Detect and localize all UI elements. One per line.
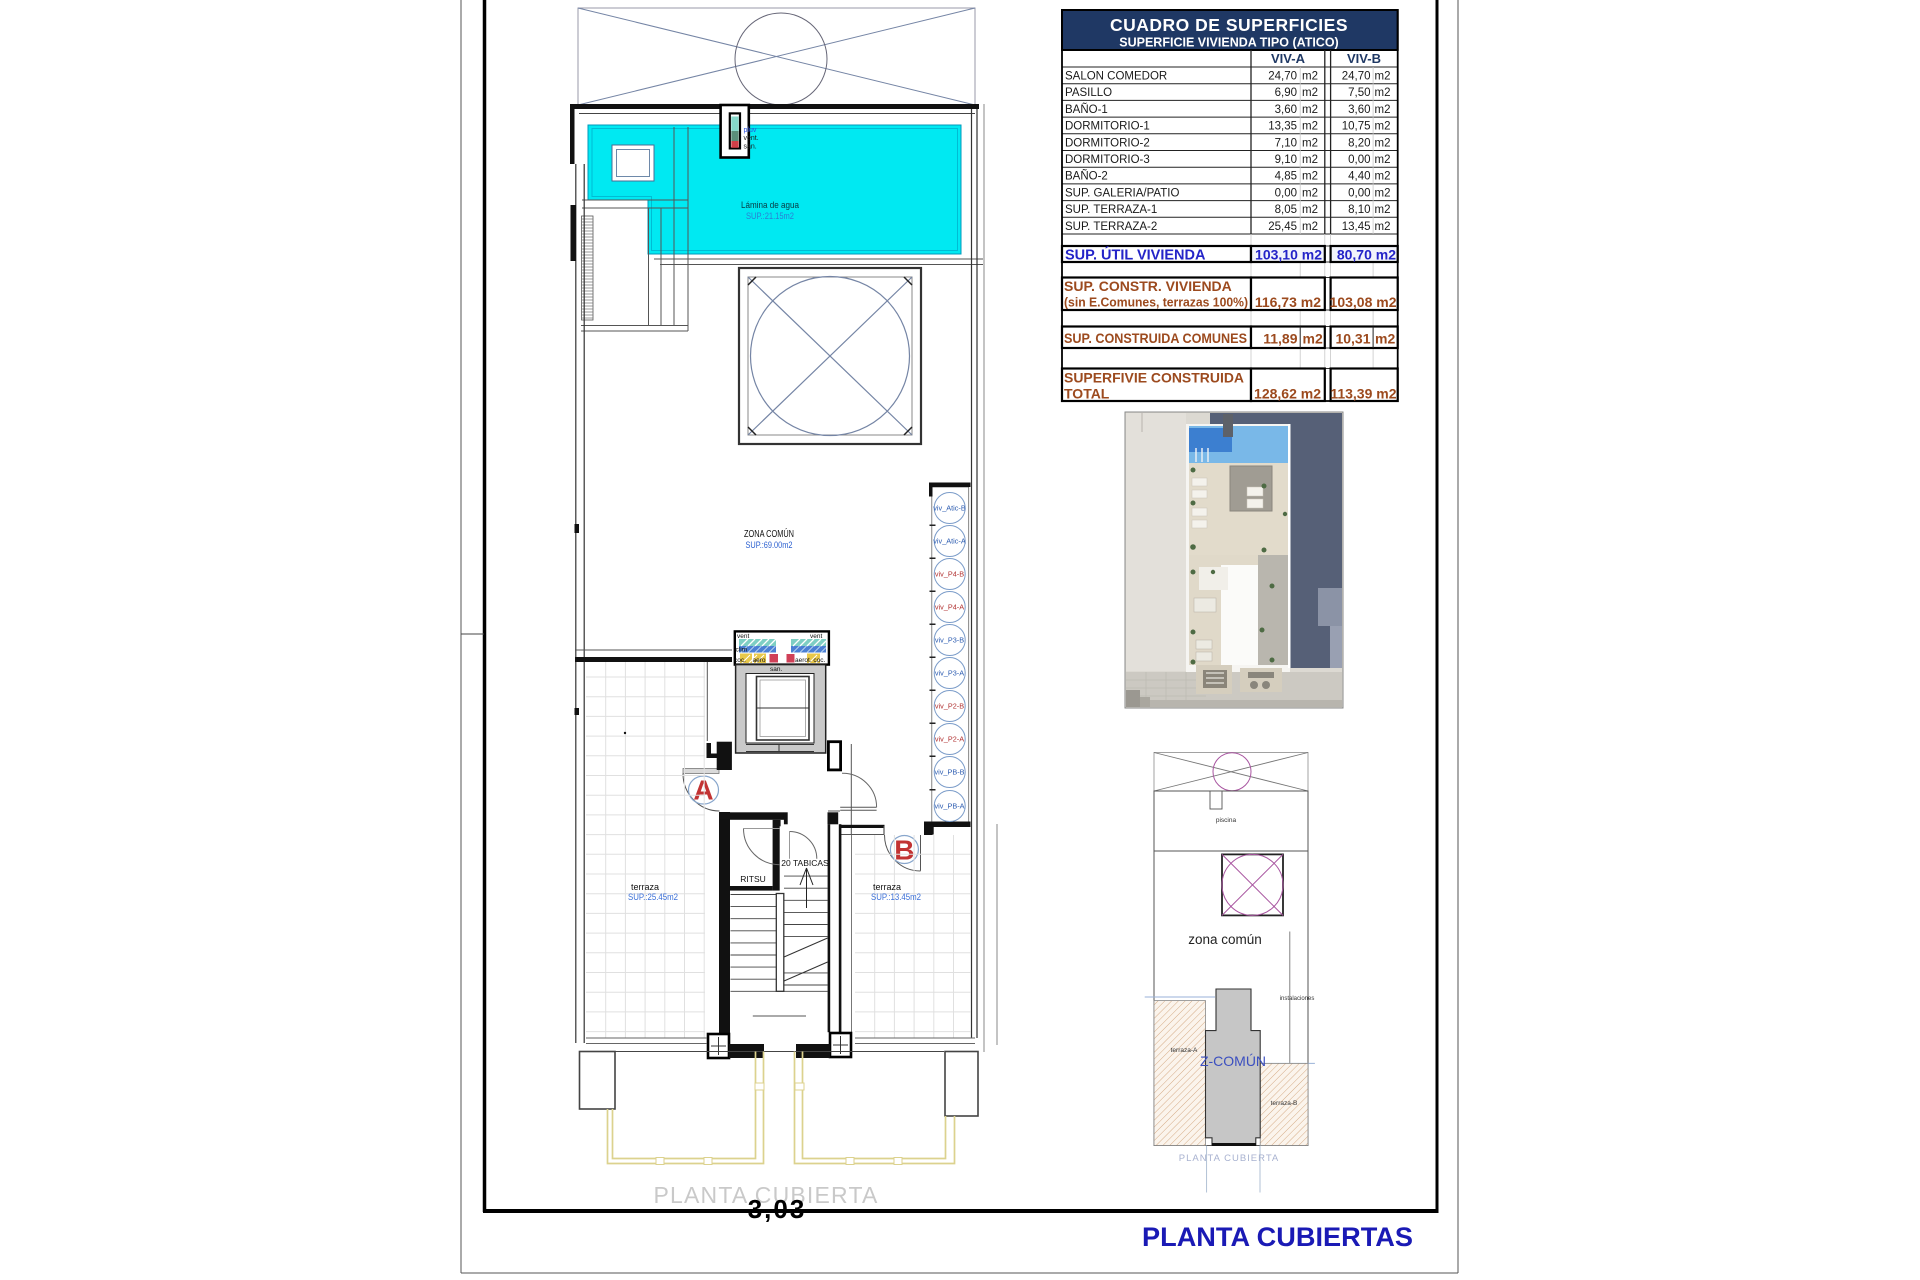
svg-text:viv_PB-B: viv_PB-B — [934, 768, 964, 777]
svg-text:vent: vent — [810, 633, 822, 640]
svg-text:piscina: piscina — [1216, 817, 1237, 824]
svg-text:m2: m2 — [1302, 154, 1318, 166]
svg-text:BAÑO-2: BAÑO-2 — [1065, 170, 1108, 183]
svg-text:103,10 m2: 103,10 m2 — [1255, 247, 1322, 263]
svg-text:terraza: terraza — [873, 882, 901, 892]
svg-text:SUP.:25.45m2: SUP.:25.45m2 — [628, 892, 678, 902]
svg-text:SUP.:21.15m2: SUP.:21.15m2 — [746, 211, 794, 221]
svg-text:m2: m2 — [1375, 187, 1391, 199]
svg-text:3,60: 3,60 — [1275, 104, 1297, 116]
svg-text:m2: m2 — [1375, 204, 1391, 216]
svg-text:m2: m2 — [1302, 204, 1318, 216]
svg-text:24,70: 24,70 — [1268, 71, 1297, 83]
svg-text:m2: m2 — [1302, 187, 1318, 199]
svg-text:VIV-A: VIV-A — [1271, 51, 1306, 66]
svg-text:viv_P2-B: viv_P2-B — [935, 702, 964, 711]
svg-text:SUP. TERRAZA-2: SUP. TERRAZA-2 — [1065, 221, 1157, 233]
svg-text:RITSU: RITSU — [740, 874, 766, 884]
svg-text:m2: m2 — [1375, 137, 1391, 149]
svg-text:PLANTA CUBIERTA: PLANTA CUBIERTA — [1179, 1153, 1280, 1164]
svg-text:(sin E.Comunes, terrazas 100%): (sin E.Comunes, terrazas 100%) — [1064, 295, 1248, 310]
svg-text:m2: m2 — [1375, 331, 1395, 347]
svg-text:13,45: 13,45 — [1342, 221, 1371, 233]
svg-text:viv_Atic-B: viv_Atic-B — [933, 504, 966, 513]
svg-text:SUPERFICIE VIVIENDA TIPO (ATI: SUPERFICIE VIVIENDA TIPO (ATICO) — [1119, 36, 1338, 50]
svg-text:san.: san. — [770, 666, 782, 673]
svg-text:m2: m2 — [1302, 71, 1318, 83]
svg-text:Lámina de agua: Lámina de agua — [741, 200, 800, 211]
svg-text:CUADRO DE SUPERFICIES: CUADRO DE SUPERFICIES — [1110, 15, 1348, 35]
svg-text:103,08 m2: 103,08 m2 — [1330, 294, 1397, 310]
svg-text:24,70: 24,70 — [1342, 71, 1371, 83]
svg-text:viv_P4-B: viv_P4-B — [935, 570, 964, 579]
svg-text:DORMITORIO-2: DORMITORIO-2 — [1065, 137, 1150, 149]
svg-text:25,45: 25,45 — [1268, 221, 1297, 233]
svg-text:m2: m2 — [1303, 331, 1323, 347]
svg-text:clim: clim — [736, 647, 748, 654]
svg-text:m2: m2 — [1375, 87, 1391, 99]
svg-text:terraza-B: terraza-B — [1271, 1100, 1298, 1107]
svg-text:8,10: 8,10 — [1348, 204, 1370, 216]
svg-text:m2: m2 — [1375, 171, 1391, 183]
svg-text:6,90: 6,90 — [1275, 87, 1297, 99]
svg-text:8,20: 8,20 — [1348, 137, 1370, 149]
svg-text:aero: aero — [753, 657, 766, 664]
svg-text:instalaciones: instalaciones — [1280, 996, 1315, 1002]
svg-text:128,62 m2: 128,62 m2 — [1254, 386, 1321, 402]
svg-text:aerot. coc.: aerot. coc. — [795, 657, 826, 664]
svg-text:m2: m2 — [1375, 121, 1391, 133]
svg-text:0,00: 0,00 — [1348, 154, 1370, 166]
svg-text:m2: m2 — [1375, 154, 1391, 166]
svg-text:11,89: 11,89 — [1263, 331, 1297, 347]
svg-text:13,35: 13,35 — [1268, 121, 1297, 133]
svg-text:PASILLO: PASILLO — [1065, 87, 1112, 99]
svg-text:SUP.:69.00m2: SUP.:69.00m2 — [746, 540, 793, 550]
svg-text:vent: vent — [737, 633, 749, 640]
svg-text:A: A — [693, 775, 713, 806]
svg-text:10,31: 10,31 — [1335, 331, 1370, 347]
svg-text:m2: m2 — [1375, 104, 1391, 116]
svg-text:terraza-A: terraza-A — [1171, 1047, 1198, 1054]
svg-text:viv_P3-B: viv_P3-B — [935, 636, 964, 645]
svg-text:TOTAL: TOTAL — [1064, 386, 1110, 402]
svg-text:DORMITORIO-1: DORMITORIO-1 — [1065, 121, 1150, 133]
svg-text:0,00: 0,00 — [1275, 187, 1297, 199]
svg-text:m2: m2 — [1302, 104, 1318, 116]
svg-text:viv_PB-A: viv_PB-A — [934, 802, 964, 811]
svg-text:san.: san. — [744, 144, 757, 151]
svg-text:4,40: 4,40 — [1348, 171, 1370, 183]
svg-text:m2: m2 — [1302, 221, 1318, 233]
svg-text:m2: m2 — [1375, 71, 1391, 83]
svg-text:SUP. TERRAZA-1: SUP. TERRAZA-1 — [1065, 204, 1157, 216]
svg-text:113,39 m2: 113,39 m2 — [1330, 386, 1396, 402]
svg-text:SALON COMEDOR: SALON COMEDOR — [1065, 71, 1167, 83]
svg-text:8,05: 8,05 — [1275, 204, 1297, 216]
svg-text:SUP. GALERIA/PATIO: SUP. GALERIA/PATIO — [1065, 187, 1179, 199]
svg-text:3,60: 3,60 — [1348, 104, 1370, 116]
svg-text:20 TABICAS: 20 TABICAS — [781, 858, 829, 868]
svg-text:0,00: 0,00 — [1348, 187, 1370, 199]
svg-text:m2: m2 — [1302, 171, 1318, 183]
svg-text:m2: m2 — [1375, 221, 1391, 233]
svg-text:terraza: terraza — [631, 882, 659, 892]
svg-text:m2: m2 — [1302, 121, 1318, 133]
svg-text:10,75: 10,75 — [1342, 121, 1371, 133]
svg-text:pluv: pluv — [744, 127, 757, 134]
svg-text:vent.: vent. — [744, 135, 759, 142]
svg-text:7,10: 7,10 — [1275, 137, 1297, 149]
svg-text:viv_P3-A: viv_P3-A — [935, 669, 964, 678]
svg-text:viv_Atic-A: viv_Atic-A — [933, 537, 966, 546]
svg-text:coc.: coc. — [734, 657, 746, 664]
svg-text:116,73 m2: 116,73 m2 — [1255, 294, 1321, 310]
svg-text:Z-COMÚN: Z-COMÚN — [1200, 1053, 1266, 1069]
svg-text:80,70 m2: 80,70 m2 — [1337, 247, 1396, 263]
svg-text:viv_P2-A: viv_P2-A — [935, 735, 964, 744]
svg-text:SUPERFIVIE CONSTRUIDA: SUPERFIVIE CONSTRUIDA — [1064, 370, 1244, 386]
svg-text:B: B — [894, 835, 914, 866]
svg-text:SUP.:13.45m2: SUP.:13.45m2 — [871, 892, 921, 902]
svg-text:m2: m2 — [1302, 137, 1318, 149]
svg-text:m2: m2 — [1302, 87, 1318, 99]
svg-text:SUP. CONSTR. VIVIENDA: SUP. CONSTR. VIVIENDA — [1064, 278, 1232, 294]
svg-text:SUP. CONSTRUIDA COMUNES: SUP. CONSTRUIDA COMUNES — [1064, 330, 1247, 346]
svg-text:BAÑO-1: BAÑO-1 — [1065, 103, 1108, 116]
svg-text:PLANTA CUBIERTAS: PLANTA CUBIERTAS — [1142, 1222, 1413, 1252]
svg-text:DORMITORIO-3: DORMITORIO-3 — [1065, 154, 1150, 166]
svg-text:3,03: 3,03 — [748, 1194, 807, 1224]
svg-text:viv_P4-A: viv_P4-A — [935, 603, 964, 612]
svg-text:4,85: 4,85 — [1275, 171, 1297, 183]
svg-text:9,10: 9,10 — [1275, 154, 1297, 166]
svg-text:SUP. ÚTIL VIVIENDA: SUP. ÚTIL VIVIENDA — [1065, 246, 1206, 264]
svg-text:ZONA COMÚN: ZONA COMÚN — [744, 527, 794, 540]
svg-text:VIV-B: VIV-B — [1347, 51, 1381, 66]
svg-text:zona común: zona común — [1188, 932, 1262, 947]
svg-text:7,50: 7,50 — [1348, 87, 1370, 99]
